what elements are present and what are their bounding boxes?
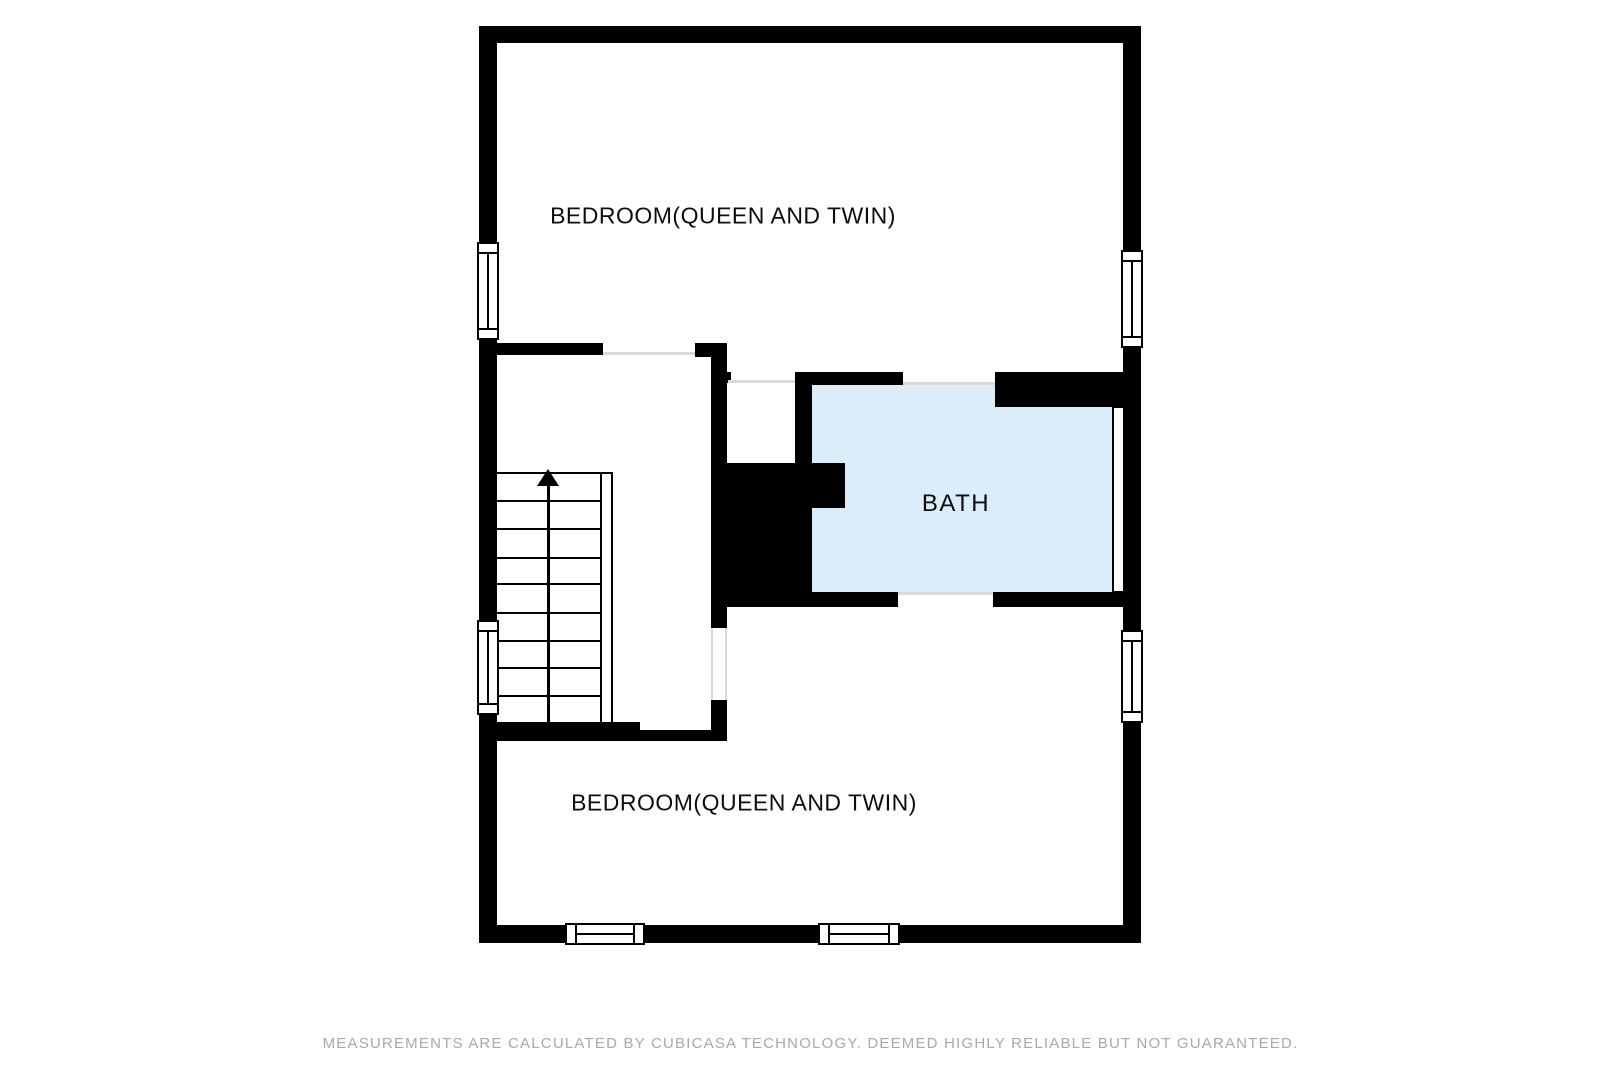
window-bottom-left <box>565 923 645 945</box>
window-right-lower <box>1121 630 1143 723</box>
stairs-up-arrow-icon <box>537 469 559 486</box>
stairs-direction-line <box>547 484 550 723</box>
exterior-wall-top <box>479 26 1141 43</box>
exterior-wall-right <box>1123 26 1141 941</box>
interior-wall-stairhall-bottom-thin <box>640 730 711 741</box>
window-frame-line <box>633 925 635 943</box>
window-frame-line <box>1123 711 1141 713</box>
interior-wall-doorjamb-lower <box>711 700 727 741</box>
interior-wall-bath-top <box>795 372 903 385</box>
window-glass-line <box>1131 642 1133 711</box>
window-glass-line <box>487 254 489 328</box>
floor-plan: BEDROOM(QUEEN AND TWIN) BATH BEDROOM(QUE… <box>0 0 1621 1080</box>
room-label-bedroom-bottom: BEDROOM(QUEEN AND TWIN) <box>571 790 917 817</box>
window-glass-line <box>830 933 888 935</box>
interior-wall-bath-bottom-left <box>812 592 898 607</box>
door-opening-bedroomtop-hall <box>603 352 695 355</box>
interior-void-bump <box>812 463 845 508</box>
door-opening-bath-bottom <box>898 592 993 595</box>
door-opening-bath-top <box>903 382 995 385</box>
footer-disclaimer: MEASUREMENTS ARE CALCULATED BY CUBICASA … <box>323 1035 1299 1052</box>
window-left-lower <box>477 620 499 715</box>
bath-floor <box>812 385 1112 592</box>
stairs <box>497 472 613 723</box>
window-right-upper <box>1121 250 1143 348</box>
window-frame-line <box>479 328 497 330</box>
room-label-bath: BATH <box>922 490 990 518</box>
stairs-stringer-line <box>600 472 602 723</box>
window-frame-line <box>479 703 497 705</box>
interior-void-landing <box>711 463 812 607</box>
window-glass-line <box>487 632 489 703</box>
exterior-wall-left <box>479 26 497 941</box>
interior-wall-hall-top <box>497 343 603 355</box>
interior-wall-hall-right <box>711 343 727 463</box>
door-opening-closet <box>728 380 795 383</box>
window-left-upper <box>477 242 499 340</box>
interior-wall-doorjamb-upper <box>711 607 727 628</box>
interior-wall-bath-bottom-right <box>993 592 1123 607</box>
window-frame-line <box>1123 336 1141 338</box>
door-opening-hall-bedroombottom <box>711 628 727 700</box>
window-glass-line <box>1131 262 1133 336</box>
interior-wall-bath-left <box>795 385 812 463</box>
room-label-bedroom-top: BEDROOM(QUEEN AND TWIN) <box>550 203 896 230</box>
window-glass-line <box>577 933 633 935</box>
interior-wall-stairhall-bottom <box>497 722 640 741</box>
window-bottom-right <box>818 923 900 945</box>
bath-pocket-door-strip <box>1112 407 1123 592</box>
window-frame-line <box>888 925 890 943</box>
interior-wall-bath-topright-block <box>995 372 1123 407</box>
